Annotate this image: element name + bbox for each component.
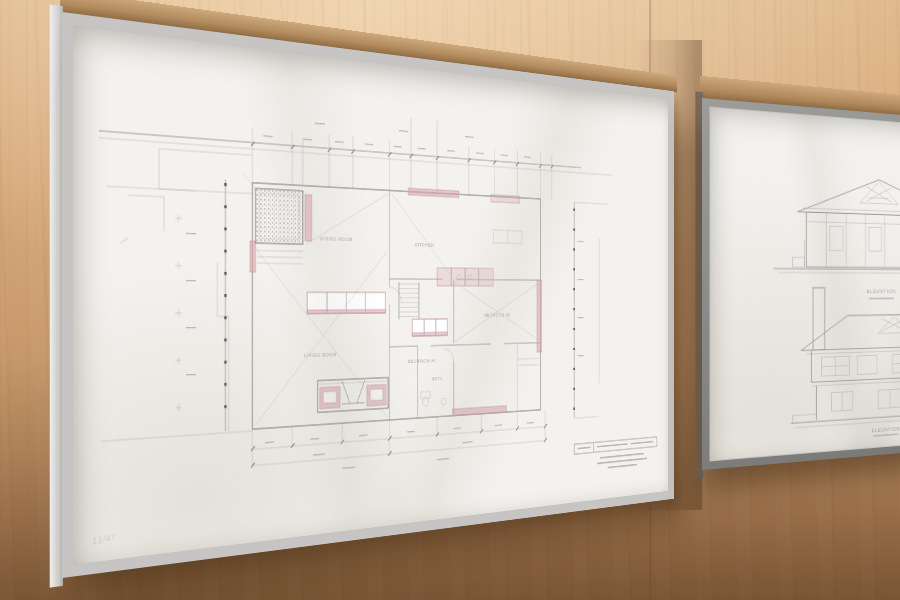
label-bath: BATH xyxy=(432,377,442,382)
elevation-two-story: ELEVATION xyxy=(791,287,900,442)
stairs xyxy=(399,282,419,319)
framed-elevations: ELEVATION xyxy=(702,98,900,470)
gray-frame: ELEVATION xyxy=(702,98,900,470)
frame-left-face xyxy=(50,4,63,587)
silver-frame: DINING ROOM KITCHEN LIVING ROOM BEDROOM … xyxy=(62,12,674,578)
label-bedroom-2: BEDROOM #2 xyxy=(484,312,510,317)
fireplace xyxy=(318,378,389,413)
elevation-drawings: ELEVATION xyxy=(710,108,900,461)
pencil-inscription: 11/47 xyxy=(91,532,116,547)
hatched-patio xyxy=(256,188,303,263)
title-block xyxy=(574,437,657,472)
framed-floor-plan: DINING ROOM KITCHEN LIVING ROOM BEDROOM … xyxy=(62,12,674,578)
elevation-one-story: ELEVATION xyxy=(774,169,900,300)
label-bedroom-1: BEDROOM #1 xyxy=(408,358,437,364)
floor-plan-sheet: DINING ROOM KITCHEN LIVING ROOM BEDROOM … xyxy=(72,24,668,565)
caption-elevation-1: ELEVATION xyxy=(867,288,896,294)
label-living-room: LIVING ROOM xyxy=(304,352,337,358)
tick-columns xyxy=(175,176,607,447)
elevation-sheet: ELEVATION xyxy=(709,107,900,462)
label-kitchen: KITCHEN xyxy=(415,242,434,248)
label-dining-room: DINING ROOM xyxy=(320,236,353,242)
bath-fixtures xyxy=(421,391,446,407)
floor-plan-drawing: DINING ROOM KITCHEN LIVING ROOM BEDROOM … xyxy=(73,25,668,564)
photo-scene: DINING ROOM KITCHEN LIVING ROOM BEDROOM … xyxy=(0,0,900,600)
caption-elevation-2: ELEVATION xyxy=(872,426,900,434)
